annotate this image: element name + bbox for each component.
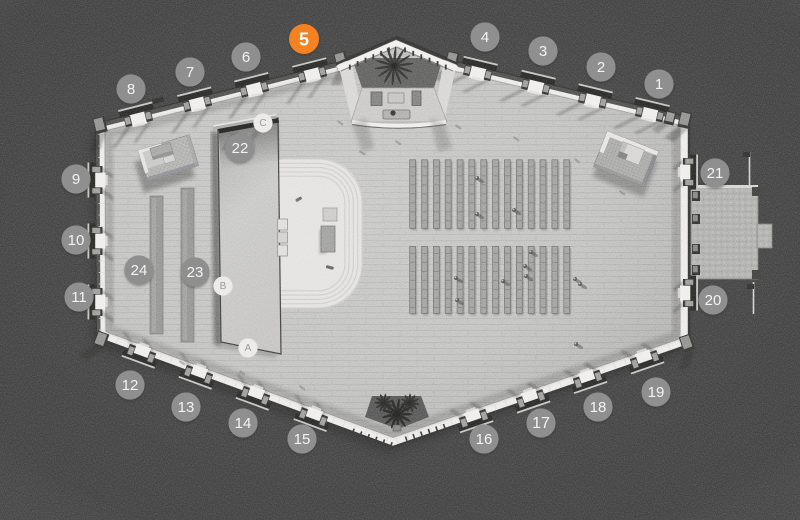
svg-text:20: 20 bbox=[705, 292, 722, 309]
svg-text:5: 5 bbox=[299, 30, 309, 50]
svg-text:10: 10 bbox=[68, 232, 85, 249]
svg-text:12: 12 bbox=[122, 377, 139, 394]
svg-text:17: 17 bbox=[532, 415, 550, 432]
svg-text:13: 13 bbox=[178, 399, 195, 416]
svg-text:15: 15 bbox=[294, 431, 311, 448]
svg-text:3: 3 bbox=[539, 43, 547, 60]
svg-text:C: C bbox=[259, 118, 266, 129]
svg-text:24: 24 bbox=[131, 262, 148, 279]
svg-text:19: 19 bbox=[648, 384, 665, 401]
svg-text:23: 23 bbox=[187, 264, 204, 281]
svg-text:8: 8 bbox=[127, 81, 135, 98]
svg-text:6: 6 bbox=[242, 49, 250, 66]
svg-text:11: 11 bbox=[71, 289, 87, 306]
svg-text:4: 4 bbox=[481, 29, 489, 46]
svg-text:A: A bbox=[245, 343, 252, 354]
svg-text:16: 16 bbox=[476, 431, 493, 448]
svg-text:1: 1 bbox=[655, 76, 663, 93]
svg-text:B: B bbox=[220, 281, 227, 292]
svg-text:18: 18 bbox=[590, 399, 607, 416]
svg-text:22: 22 bbox=[232, 140, 249, 157]
svg-text:21: 21 bbox=[707, 165, 724, 182]
svg-text:7: 7 bbox=[186, 64, 194, 81]
svg-text:2: 2 bbox=[597, 59, 605, 76]
svg-text:9: 9 bbox=[72, 171, 80, 188]
svg-text:14: 14 bbox=[235, 415, 252, 432]
